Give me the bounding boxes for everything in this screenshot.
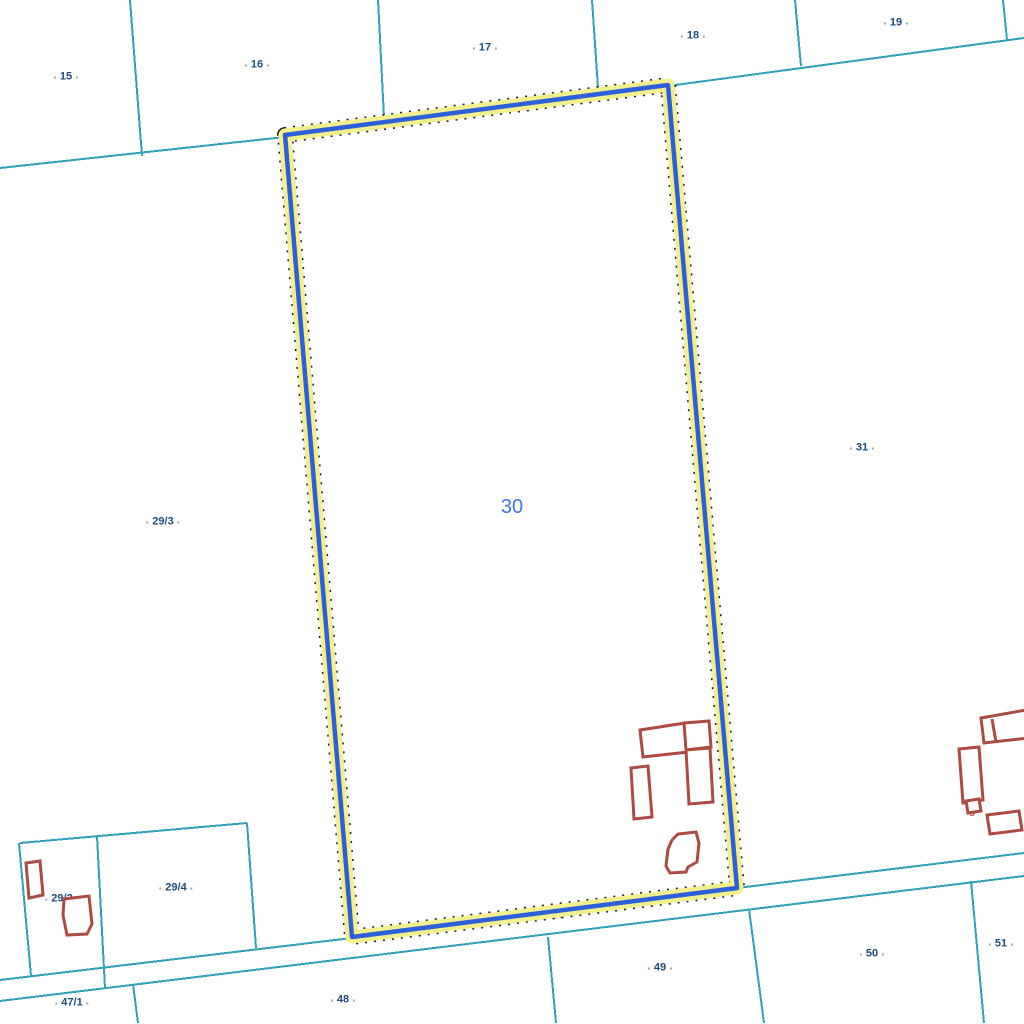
selection-halo: [285, 85, 737, 937]
cadastral-map-canvas[interactable]: 34 15 16 17 18 19 31 29/3 29/2 29/4 47/1…: [0, 0, 1024, 1024]
selected-parcel-30[interactable]: [285, 85, 737, 937]
selection-boundary: [285, 85, 737, 937]
selection-dotted-edge: [285, 85, 737, 937]
selected-parcel-highlight-layer: [0, 0, 1024, 1024]
